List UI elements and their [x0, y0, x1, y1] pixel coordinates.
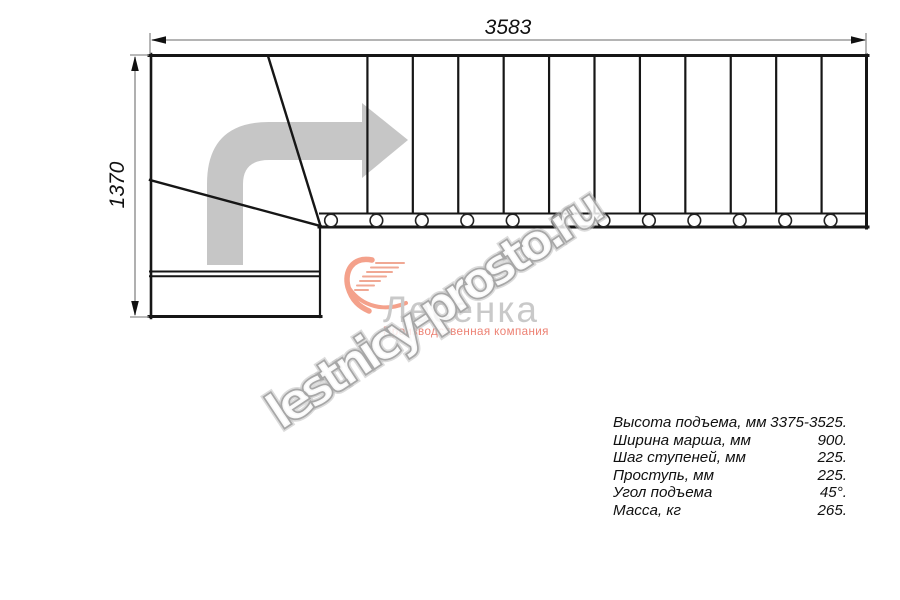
spec-row: Проступь, мм 225.: [613, 467, 847, 485]
dim-width-label: 3583: [458, 16, 558, 40]
spec-row: Ширина марша, мм 900.: [613, 432, 847, 450]
spec-value: 45°.: [820, 484, 847, 502]
spec-value: 265.: [817, 502, 847, 520]
spec-value: 3375-3525.: [770, 414, 847, 432]
dim-arrow-down-icon: [131, 301, 139, 316]
dim-height-label: 1370: [106, 135, 130, 235]
spec-row: Масса, кг 265.: [613, 502, 847, 520]
spec-value: 900.: [817, 432, 847, 450]
spec-label: Угол подъема: [613, 484, 712, 502]
spec-value: 225.: [817, 449, 847, 467]
spec-row: Угол подъема 45°.: [613, 484, 847, 502]
dim-arrow-right-icon: [851, 36, 866, 44]
logo-company-subtitle: Производственная компания: [383, 325, 549, 338]
spec-label: Высота подъема, мм: [613, 414, 767, 432]
dim-arrow-up-icon: [131, 56, 139, 71]
spec-label: Шаг ступеней, мм: [613, 449, 746, 467]
spec-row: Высота подъема, мм 3375-3525.: [613, 414, 847, 432]
spec-row: Шаг ступеней, мм 225.: [613, 449, 847, 467]
spec-value: 225.: [817, 467, 847, 485]
spec-label: Ширина марша, мм: [613, 432, 751, 450]
tread-lines: [367, 56, 821, 213]
baluster-circles: [325, 214, 837, 227]
spec-table: Высота подъема, мм 3375-3525. Ширина мар…: [613, 414, 847, 519]
spec-label: Проступь, мм: [613, 467, 714, 485]
dim-arrow-left-icon: [151, 36, 166, 44]
stair-drawing-page: 3583 1370 Лесенка Производственная компа…: [0, 0, 900, 600]
spec-label: Масса, кг: [613, 502, 681, 520]
stair-outline: [149, 54, 868, 318]
